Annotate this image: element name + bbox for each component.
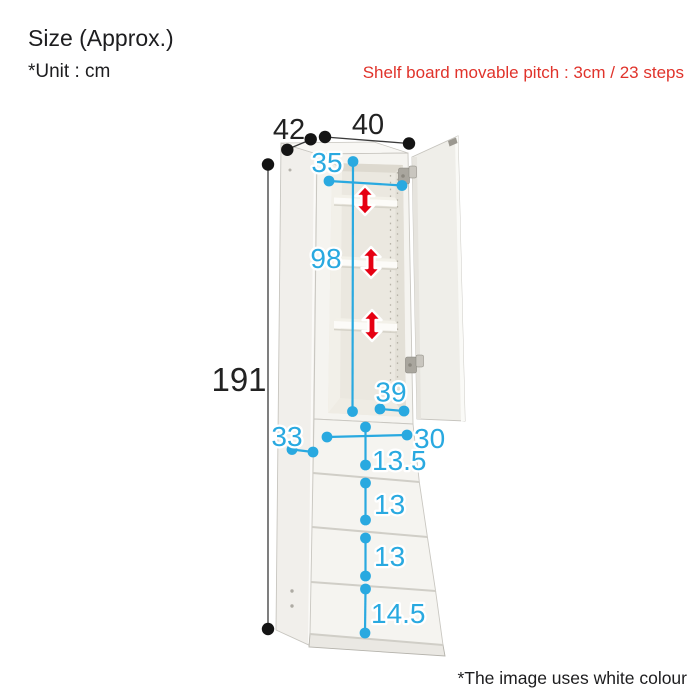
colour-note: *The image uses white colour	[457, 668, 687, 688]
inner-width-label: 35	[311, 147, 342, 178]
depth-dim-label: 42	[273, 114, 305, 146]
dim-dot-blue	[360, 422, 371, 433]
cam-dot	[290, 589, 293, 592]
dim-dot-blue	[360, 533, 371, 544]
dim-dot	[403, 137, 415, 149]
dim-dot-blue	[397, 180, 408, 191]
dim-dot	[305, 133, 317, 145]
dim-dot	[262, 158, 274, 170]
drawer1-height-label: 13.5	[372, 445, 427, 476]
drawer2-height-label: 13	[374, 489, 405, 520]
dim-dot-blue	[360, 584, 371, 595]
dim-dot	[319, 131, 331, 143]
dim-dot-blue	[360, 515, 371, 526]
dim-dot-blue	[348, 156, 359, 167]
dim-dot	[262, 623, 274, 635]
cam-dot	[289, 169, 292, 172]
drawer4-height-line	[365, 589, 366, 633]
dim-dot-blue	[360, 628, 371, 639]
cam-dot	[290, 604, 293, 607]
inner-depth-label: 39	[375, 377, 406, 408]
dim-dot-blue	[402, 430, 413, 441]
shelf-pitch-note: Shelf board movable pitch : 3cm / 23 ste…	[363, 63, 684, 82]
inner-height-label: 98	[310, 243, 341, 274]
cabinet-size-diagram: 42 40 191 35 98 39 33 30	[0, 0, 700, 700]
dim-dot-blue	[308, 447, 319, 458]
drawer3-height-label: 13	[374, 541, 405, 572]
width-dim-label: 40	[352, 109, 384, 141]
page-title: Size (Approx.)	[28, 25, 174, 51]
hinge-cup	[416, 355, 424, 367]
size-diagram-page: 42 40 191 35 98 39 33 30	[0, 0, 700, 700]
dim-dot-blue	[322, 432, 333, 443]
hinge-screw	[408, 363, 412, 367]
unit-note: *Unit : cm	[28, 61, 110, 82]
hinge-cup	[409, 166, 417, 178]
drawer-depth-label: 33	[271, 421, 302, 452]
dim-dot-blue	[360, 460, 371, 471]
dim-dot-blue	[360, 571, 371, 582]
height-dim-label: 191	[211, 361, 266, 398]
dim-dot-blue	[360, 478, 371, 489]
cabinet-door-open	[412, 136, 465, 422]
dim-dot-blue	[347, 406, 358, 417]
inner-height-line	[353, 162, 354, 412]
drawer4-height-label: 14.5	[371, 598, 426, 629]
hinge-screw	[401, 174, 405, 178]
